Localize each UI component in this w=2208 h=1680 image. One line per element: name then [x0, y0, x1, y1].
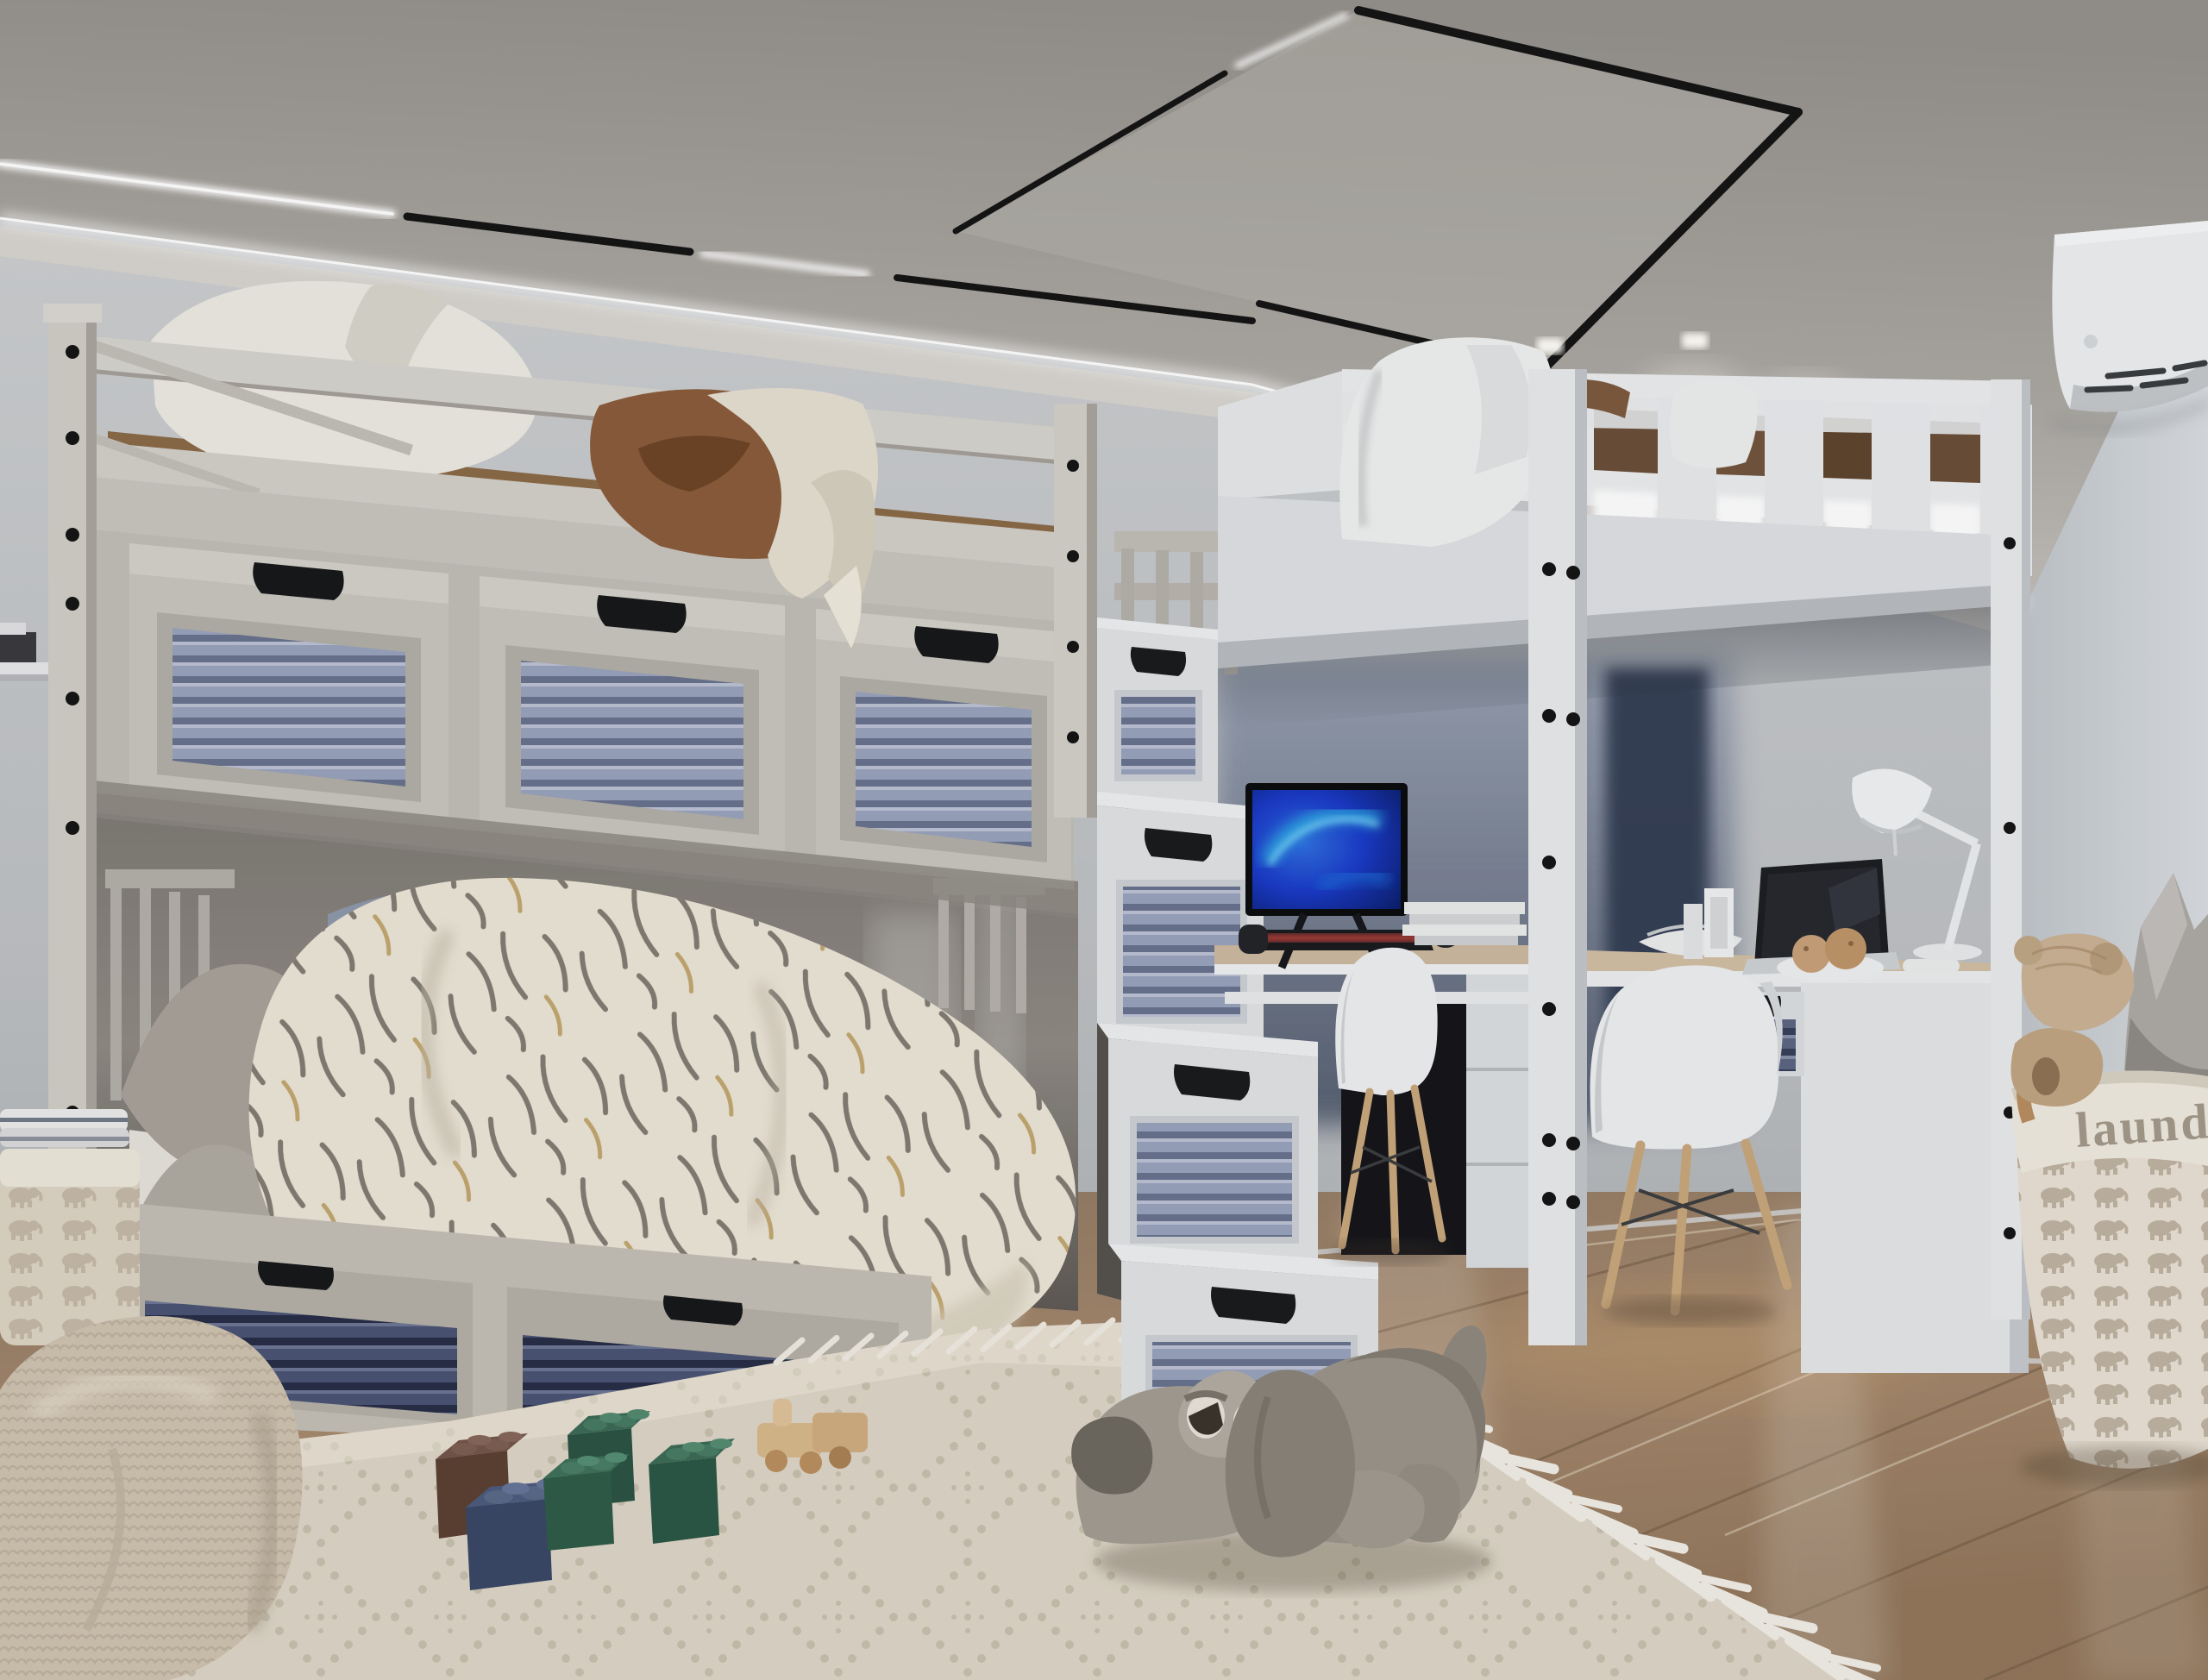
- vignette: [0, 0, 2208, 1680]
- bedroom-scene: laundry: [0, 0, 2208, 1680]
- scene-canvas: laundry: [0, 0, 2208, 1680]
